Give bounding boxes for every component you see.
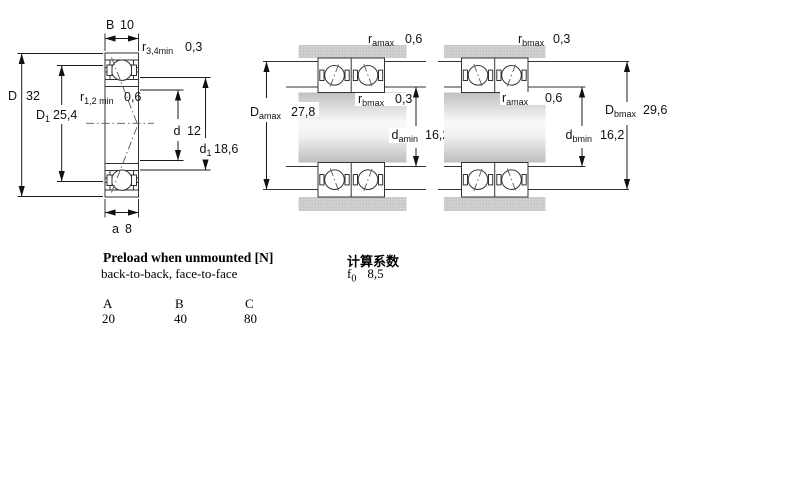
dim-Dbmax: Dbmax29,6: [605, 62, 667, 190]
bearing-pair-bottom: [462, 163, 529, 198]
preload-value-b: 40: [174, 311, 187, 327]
housing-bottom: [444, 197, 546, 211]
preload-value-c: 80: [244, 311, 257, 327]
svg-text:Damax27,8: Damax27,8: [250, 105, 315, 121]
bearing-pair-top: [462, 58, 529, 93]
dim-outer-diameter-D: D32: [8, 54, 103, 197]
preload-column-b: B: [175, 296, 184, 312]
label-ramax: ramax0,6: [500, 91, 562, 107]
dim-width-B: B10: [105, 18, 139, 51]
svg-text:B10: B10: [106, 18, 134, 32]
preload-column-c: C: [245, 296, 254, 312]
preload-title: Preload when unmounted [N]: [103, 250, 273, 266]
cage: [107, 65, 112, 76]
calc-factor-f0: f08,5: [347, 266, 384, 285]
cage: [132, 175, 137, 186]
label-r34min: r3,4min0,3: [142, 40, 202, 56]
figure-single-bearing-cross-section: B10 a8 D32 D125,4: [8, 18, 238, 236]
bearing-top-section: [105, 53, 139, 87]
label-rbmax: rbmax0,3: [355, 92, 413, 108]
svg-text:D125,4: D125,4: [36, 108, 77, 124]
figure-mounting-face-to-face: Dbmax29,6 dbmin16,2 rbmax0,3 ramax0,6: [438, 32, 667, 211]
cage: [107, 175, 112, 186]
svg-text:D32: D32: [8, 89, 40, 103]
svg-text:d12: d12: [174, 124, 201, 138]
ball: [112, 60, 132, 80]
dim-dbmin: dbmin16,2: [563, 87, 624, 167]
svg-text:a8: a8: [112, 222, 132, 236]
preload-column-a: A: [103, 296, 112, 312]
svg-text:d118,6: d118,6: [200, 142, 239, 158]
dim-offset-a: a8: [105, 199, 139, 236]
preload-value-a: 20: [102, 311, 115, 327]
svg-text:Dbmax29,6: Dbmax29,6: [605, 103, 667, 119]
figure-mounting-back-to-back: Damax27,8 damin16,2 ramax0,6 rbmax0,3: [250, 32, 449, 211]
housing-bottom: [299, 197, 407, 211]
dim-bore-diameter-d: d12: [140, 90, 201, 161]
preload-subtitle: back-to-back, face-to-face: [101, 266, 237, 282]
ball: [112, 170, 132, 190]
bearing-bottom-section: [105, 164, 139, 198]
label-r12min: r1,2 min0,6: [80, 90, 141, 106]
cage: [132, 65, 137, 76]
bearing-specification-page: { "colors": {"hatch_blue":"#c8d7eb","hou…: [0, 0, 800, 500]
bearing-pair-top: [318, 58, 385, 93]
technical-drawing: B10 a8 D32 D125,4: [0, 0, 800, 340]
bearing-pair-bottom: [318, 163, 385, 198]
